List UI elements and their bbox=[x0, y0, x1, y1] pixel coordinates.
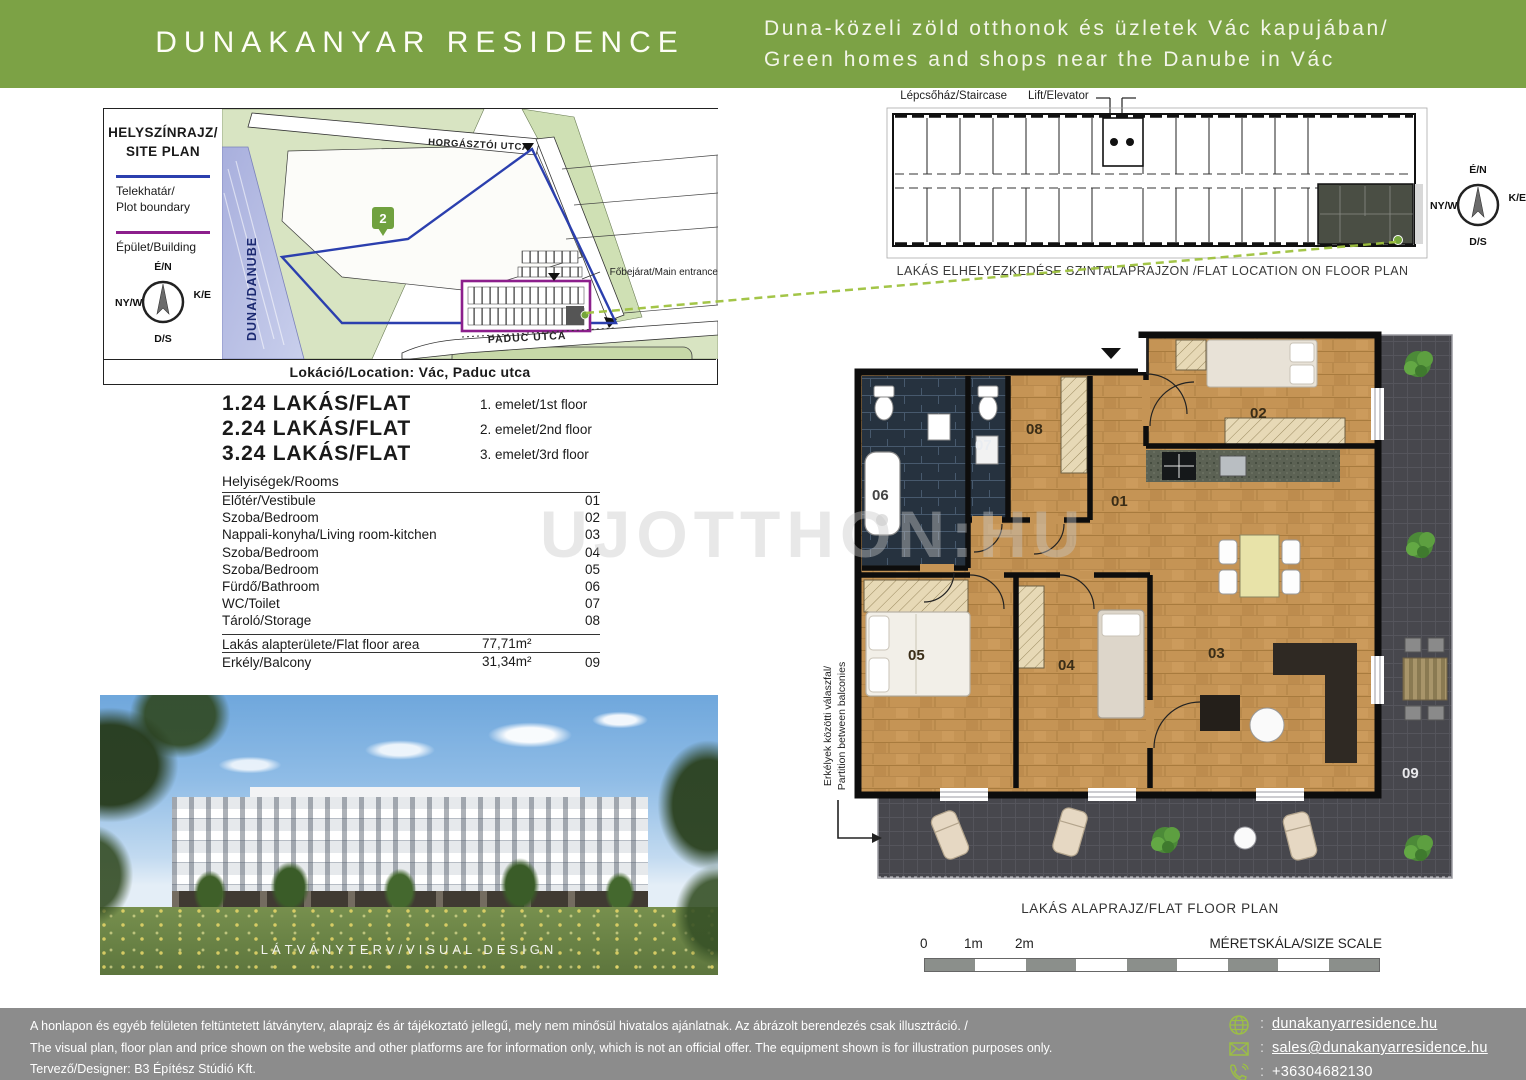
flat-marker-dot bbox=[581, 311, 589, 319]
compass-icon: É/N K/E NY/W D/S bbox=[115, 261, 211, 345]
website-link[interactable]: dunakanyarresidence.hu bbox=[1272, 1016, 1437, 1032]
toilet bbox=[979, 396, 997, 420]
flat-name: 1.24 LAKÁS/FLAT bbox=[222, 392, 411, 416]
room-row: Szoba/Bedroom02 bbox=[222, 510, 600, 527]
room-row: Előtér/Vestibule01 bbox=[222, 493, 600, 510]
balcony-area-row: Erkély/Balcony 31,34m² 09 bbox=[222, 652, 600, 671]
site-map: DUNA/DANUBE HORGÁSZTÓI UTCA Főbejárat/Ma… bbox=[222, 109, 718, 359]
river-label: DUNA/DANUBE bbox=[245, 237, 259, 341]
flat-name: 3.24 LAKÁS/FLAT bbox=[222, 442, 411, 466]
flat-dot bbox=[1394, 236, 1403, 245]
room-label: 05 bbox=[908, 647, 925, 664]
room-label: 09 bbox=[1402, 765, 1419, 782]
tree-left bbox=[100, 695, 280, 935]
location-bar: Lokáció/Location: Vác, Paduc utca bbox=[104, 359, 716, 384]
tagline-en: Green homes and shops near the Danube in… bbox=[764, 44, 1389, 75]
floor-location-plan bbox=[885, 96, 1430, 264]
disclaimer-en: The visual plan, floor plan and price sh… bbox=[30, 1038, 1052, 1060]
flat-area-value: 77,71m² bbox=[482, 636, 532, 651]
partition-note: Erkélyek közötti válaszfal/ Partition be… bbox=[821, 631, 849, 821]
site-plan-panel: HELYSZÍNRAJZ/ SITE PLAN Telekhatár/ Plot… bbox=[103, 108, 718, 385]
room-row: Szoba/Bedroom05 bbox=[222, 562, 600, 579]
tv-unit bbox=[1200, 695, 1240, 731]
flat-floor-plan: 01 02 03 04 05 06 07 08 09 bbox=[820, 328, 1465, 888]
room-label: 06 bbox=[872, 487, 889, 504]
email-link[interactable]: sales@dunakanyarresidence.hu bbox=[1272, 1040, 1488, 1056]
visual-design-caption: LÁTVÁNYTERV/VISUAL DESIGN bbox=[100, 942, 718, 957]
disclaimer-hu: A honlapon és egyéb felületen feltüntete… bbox=[30, 1016, 1052, 1038]
tree-right bbox=[598, 725, 718, 975]
designer-credit: Tervező/Designer: B3 Építész Stúdió Kft. bbox=[30, 1059, 1052, 1080]
room-row: Fürdő/Bathroom06 bbox=[222, 579, 600, 596]
phone-icon bbox=[1228, 1062, 1250, 1080]
entrance-arrow-icon bbox=[1101, 348, 1121, 359]
brochure-sheet: DUNAKANYAR RESIDENCE Duna-közeli zöld ot… bbox=[0, 0, 1526, 1080]
room-row: Nappali-konyha/Living room-kitchen03 bbox=[222, 527, 600, 544]
rooms-heading: Helyiségek/Rooms bbox=[222, 473, 600, 493]
room-label: 04 bbox=[1058, 657, 1075, 674]
plot-boundary-label: Telekhatár/ Plot boundary bbox=[116, 183, 210, 215]
tagline-hu: Duna-közeli zöld otthonok és üzletek Vác… bbox=[764, 13, 1389, 44]
dining-table bbox=[1240, 535, 1279, 597]
building-swatch bbox=[116, 231, 210, 234]
room-label: 07 bbox=[975, 437, 992, 454]
scale-bar bbox=[924, 958, 1380, 972]
floor-plan-caption: LAKÁS ALAPRAJZ/FLAT FLOOR PLAN bbox=[900, 901, 1400, 916]
flat-row: 3.24 LAKÁS/FLAT 3. emelet/3rd floor bbox=[222, 442, 600, 467]
globe-icon bbox=[1228, 1014, 1250, 1036]
coffee-table bbox=[1250, 708, 1284, 742]
flat-name: 2.24 LAKÁS/FLAT bbox=[222, 417, 411, 441]
room-row: WC/Toilet07 bbox=[222, 596, 600, 613]
room-label: 01 bbox=[1111, 493, 1128, 510]
sink bbox=[928, 414, 950, 440]
envelope-icon bbox=[1228, 1038, 1250, 1060]
flat-floor: 1. emelet/1st floor bbox=[480, 397, 587, 412]
visual-design-render: LÁTVÁNYTERV/VISUAL DESIGN bbox=[100, 695, 718, 975]
tagline: Duna-közeli zöld otthonok és üzletek Vác… bbox=[764, 13, 1389, 75]
compass-needle-icon bbox=[1455, 182, 1501, 228]
balcony-area-value: 31,34m² bbox=[482, 654, 532, 669]
site-plan-heading: HELYSZÍNRAJZ/ SITE PLAN bbox=[104, 123, 222, 161]
page-title: DUNAKANYAR RESIDENCE bbox=[150, 26, 690, 60]
scale-0: 0 bbox=[920, 936, 928, 951]
svg-text:2: 2 bbox=[379, 211, 386, 226]
scale-2m: 2m bbox=[1015, 936, 1034, 951]
compass-icon: É/N K/E NY/W D/S bbox=[1430, 164, 1526, 248]
room-row: Szoba/Bedroom04 bbox=[222, 545, 600, 562]
room-row: Tároló/Storage08 bbox=[222, 613, 600, 630]
flat-area-row: Lakás alapterülete/Flat floor area 77,71… bbox=[222, 634, 600, 653]
phone-number: +36304682130 bbox=[1272, 1064, 1373, 1080]
room-label: 02 bbox=[1250, 405, 1267, 422]
toilet bbox=[875, 396, 893, 420]
flat-row: 1.24 LAKÁS/FLAT 1. emelet/1st floor bbox=[222, 392, 600, 417]
header-band: DUNAKANYAR RESIDENCE Duna-közeli zöld ot… bbox=[0, 0, 1526, 88]
flat-list: 1.24 LAKÁS/FLAT 1. emelet/1st floor 2.24… bbox=[222, 392, 600, 671]
room-label: 03 bbox=[1208, 645, 1225, 662]
plot-boundary-swatch bbox=[116, 175, 210, 178]
disclaimer: A honlapon és egyéb felületen feltüntete… bbox=[30, 1016, 1052, 1080]
site-plan-legend: HELYSZÍNRAJZ/ SITE PLAN Telekhatár/ Plot… bbox=[104, 109, 223, 358]
scale-label: MÉRETSKÁLA/SIZE SCALE bbox=[1160, 936, 1382, 951]
flat-row: 2.24 LAKÁS/FLAT 2. emelet/2nd floor bbox=[222, 417, 600, 442]
main-entrance-label: Főbejárat/Main entrance bbox=[610, 267, 718, 278]
building-label: Épület/Building bbox=[116, 239, 210, 255]
compass-needle-icon bbox=[140, 279, 186, 325]
flat-floor: 3. emelet/3rd floor bbox=[480, 447, 589, 462]
footer: A honlapon és egyéb felületen feltüntete… bbox=[0, 1008, 1526, 1080]
room-label: 08 bbox=[1026, 421, 1043, 438]
flat-floor: 2. emelet/2nd floor bbox=[480, 422, 592, 437]
scale-1m: 1m bbox=[964, 936, 983, 951]
flat-location-caption: LAKÁS ELHELYEZKEDÉSE SZINTALAPRAJZON /FL… bbox=[860, 264, 1445, 278]
